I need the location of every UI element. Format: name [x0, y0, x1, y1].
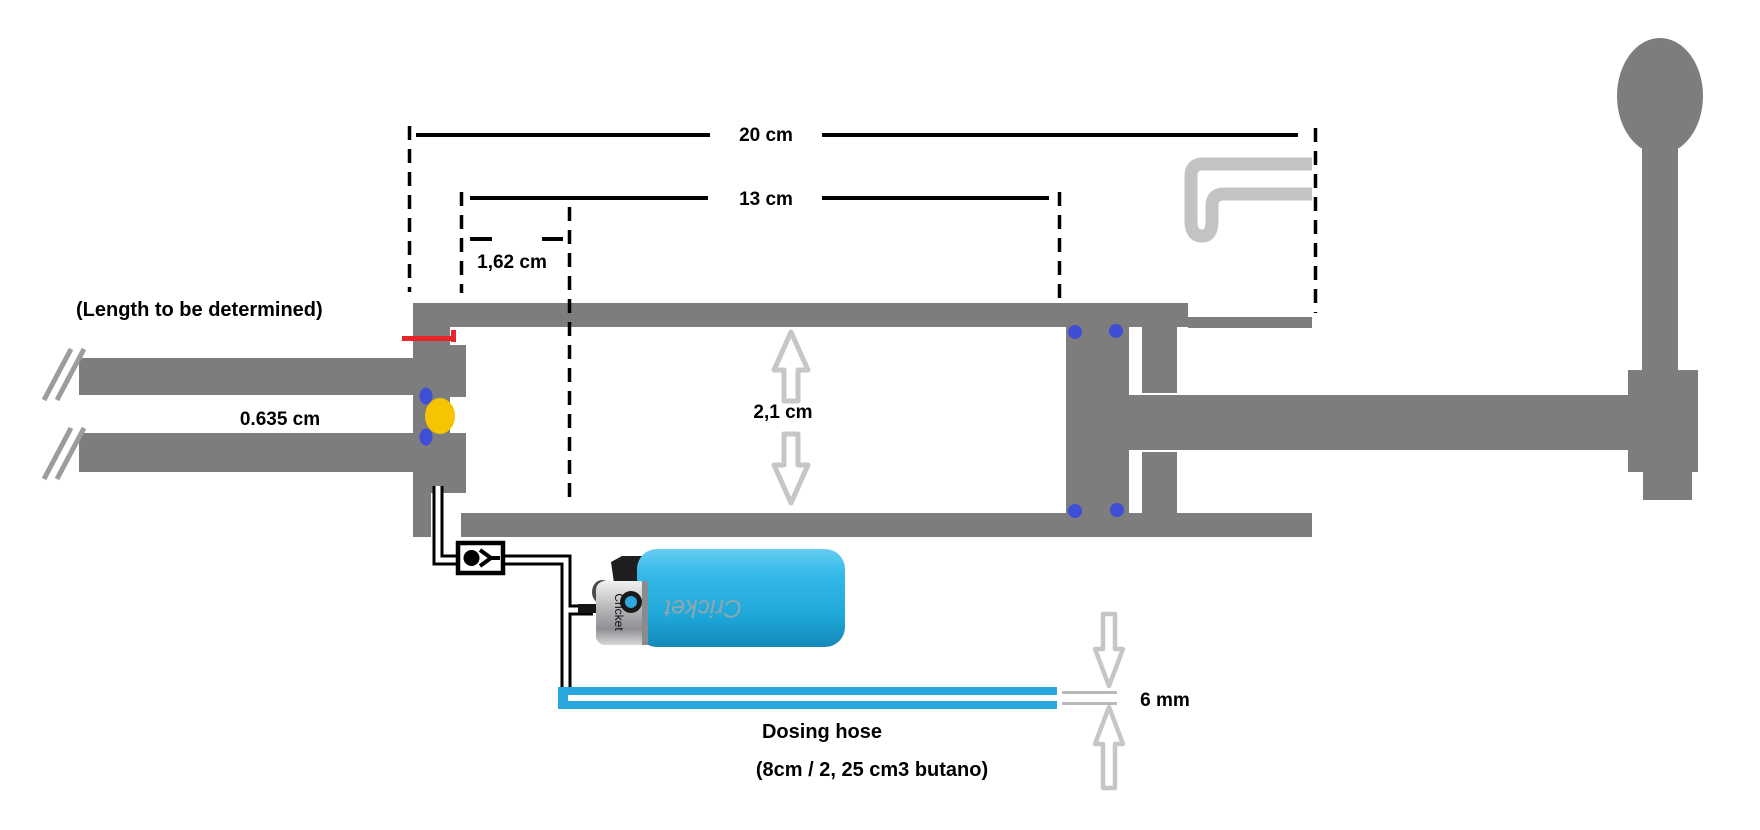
piston-rod: [1129, 395, 1697, 450]
o-ring-dot: [1068, 325, 1082, 339]
seat-lip-upper: [450, 345, 466, 397]
dosing-hose-end-cap: [558, 687, 568, 709]
lighter-cap-brand: Cricket: [612, 593, 626, 631]
lighter-body-brand: Cricket: [663, 594, 742, 622]
break-mark: [44, 349, 71, 400]
dosing-hose: [558, 687, 1057, 709]
hose-reference-lines: [1062, 691, 1117, 705]
chamber-top-wall: [413, 303, 1188, 327]
dim-label-2-1cm: 2,1 cm: [733, 402, 833, 424]
yoke-front-lower: [1142, 452, 1177, 517]
handle-bar: [1642, 140, 1678, 375]
arrow-up-icon: [1095, 707, 1123, 788]
gas-tube-inner: [503, 560, 566, 690]
arrow-down-icon: [774, 434, 808, 503]
pneumatic-cannon-diagram: Cricket Cricket 20 cm 13 cm 1,62 cm (Len…: [0, 0, 1760, 830]
ref-line-top: [1062, 691, 1117, 694]
cricket-lighter: Cricket Cricket: [578, 549, 845, 647]
dosing-hose-top-line: [568, 687, 1057, 695]
break-mark: [44, 428, 71, 479]
gas-tube-to-hose: [503, 560, 566, 692]
check-valve-ball: [464, 550, 480, 566]
red-marker-line: [402, 336, 454, 341]
handle-collar: [1628, 370, 1698, 472]
handle-grip-knob: [1617, 38, 1703, 154]
slide-rail-top: [1188, 317, 1312, 328]
structure-gray-parts: [79, 38, 1703, 537]
o-ring-dot: [420, 429, 433, 446]
barrel-bottom-wall: [79, 433, 452, 472]
red-marker-tick: [451, 330, 456, 342]
o-ring-dot: [1110, 503, 1124, 517]
arrow-up-icon: [774, 332, 808, 401]
o-ring-dot: [420, 388, 433, 405]
dimension-lines: [416, 135, 1298, 239]
chamber-left-wall-lower: [413, 493, 431, 537]
hose-dimension-arrows: [1095, 614, 1123, 788]
dim-label-6mm: 6 mm: [1130, 690, 1200, 712]
o-ring-dot: [1068, 504, 1082, 518]
o-ring-dot: [1109, 324, 1123, 338]
lighter-cap-edge: [642, 581, 648, 645]
dim-label-20cm: 20 cm: [710, 125, 822, 147]
dosing-hose-capacity: (8cm / 2, 25 cm3 butano): [707, 759, 1037, 782]
barrel-top-wall: [79, 358, 452, 395]
dim-label-1-62cm: 1,62 cm: [460, 252, 564, 274]
barrel-break-marks: [44, 349, 84, 479]
ref-line-bottom: [1062, 702, 1117, 705]
dosing-hose-bottom-line: [558, 701, 1057, 709]
retainer-hook: [1191, 164, 1312, 236]
arrow-down-icon: [1095, 614, 1123, 686]
dim-label-0-635cm: 0.635 cm: [228, 409, 332, 431]
handle-foot: [1643, 472, 1692, 500]
yoke-front-upper: [1142, 327, 1177, 393]
dim-label-13cm: 13 cm: [710, 189, 822, 211]
barrel-length-note: (Length to be determined): [76, 299, 323, 322]
ball-seal: [425, 398, 455, 434]
lighter-gas-stem: [578, 604, 596, 613]
seat-lip-lower: [450, 433, 466, 493]
check-valve: [458, 543, 503, 573]
piston: [1066, 327, 1129, 513]
dosing-hose-label: Dosing hose: [697, 721, 947, 744]
chamber-bottom-wall: [461, 513, 1312, 537]
